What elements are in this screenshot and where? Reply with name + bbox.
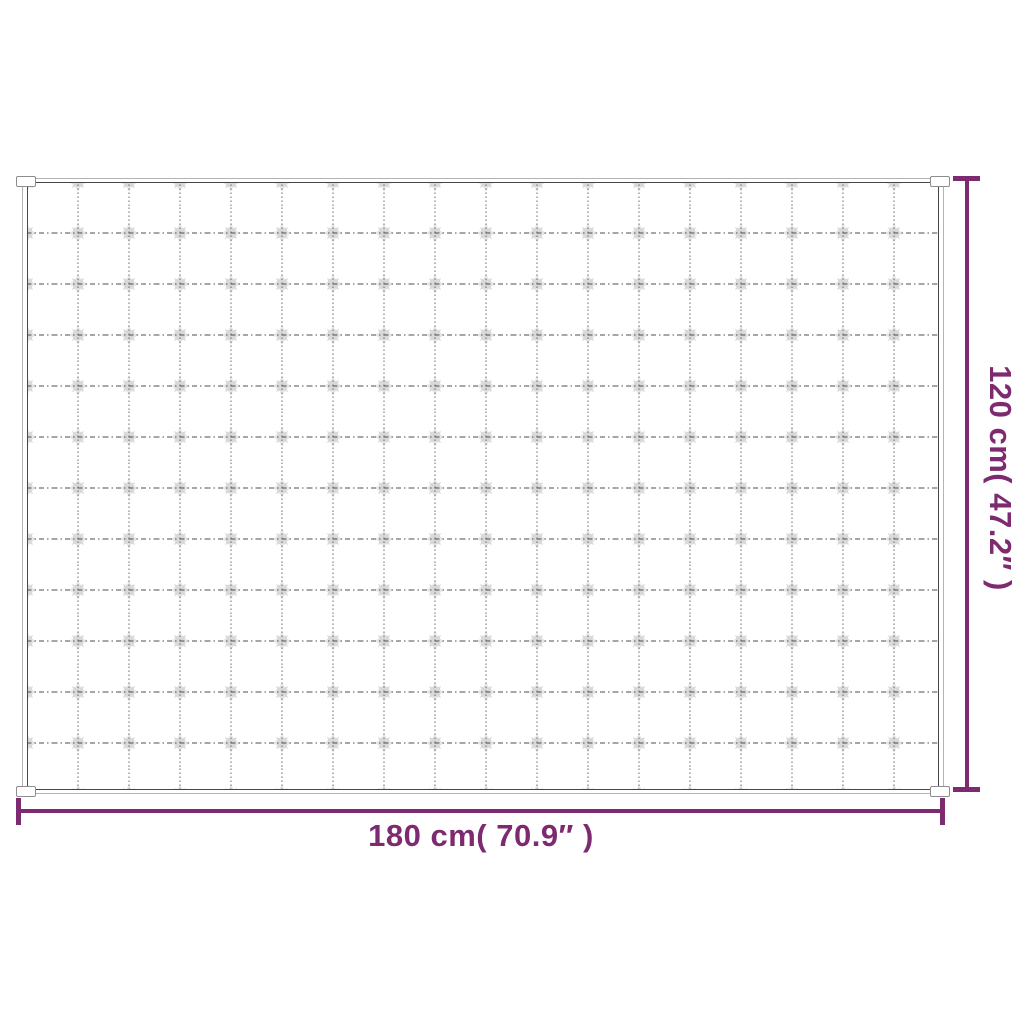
- blanket-stitched-border: [27, 182, 939, 790]
- height-dimension-label: 120 cm( 47.2″ ): [982, 365, 1018, 591]
- width-dimension-cap-left: [16, 798, 21, 825]
- quilt-grid-pattern: [28, 183, 938, 789]
- blanket-illustration: [22, 178, 944, 794]
- product-dimension-diagram: 120 cm( 47.2″ ) 180 cm( 70.9″ ): [0, 0, 1024, 1024]
- width-dimension-label: 180 cm( 70.9″ ): [368, 818, 594, 854]
- width-dimension-cap-right: [940, 798, 945, 825]
- corner-tab-top-left: [16, 176, 36, 187]
- height-dimension-cap-bottom: [953, 787, 980, 792]
- height-dimension-line: [965, 178, 969, 790]
- height-dimension-cap-top: [953, 176, 980, 181]
- width-dimension-line: [17, 809, 944, 813]
- corner-tab-bottom-left: [16, 786, 36, 797]
- corner-tab-bottom-right: [930, 786, 950, 797]
- corner-tab-top-right: [930, 176, 950, 187]
